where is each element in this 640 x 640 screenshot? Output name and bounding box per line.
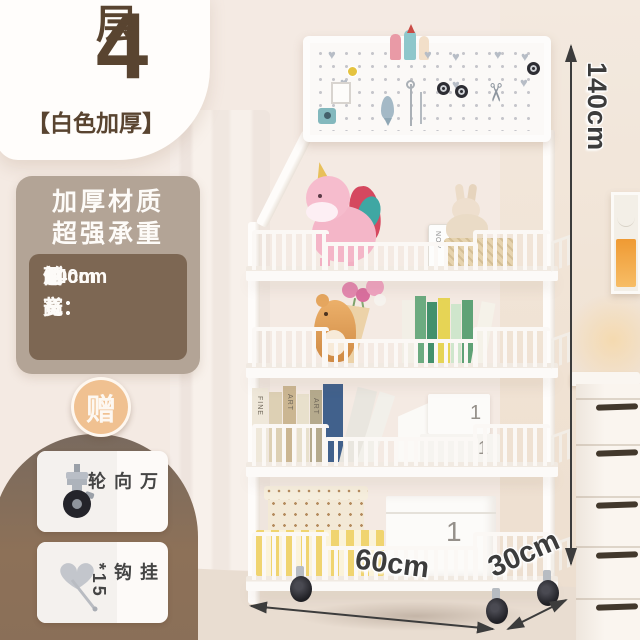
product-title-card: 4层 【白色加厚】 bbox=[0, 0, 210, 160]
feature-title-line2: 超强承重 bbox=[16, 218, 200, 250]
spec-value: 140cm bbox=[45, 262, 107, 293]
gift-item-hooks: 挂钩*15 bbox=[37, 542, 168, 623]
tier-unit: 层 bbox=[96, 0, 136, 50]
product-image: ♥ ♥ ♥ ♥ ♥ ♥ ♥ ♥ ✂ NOV 05 bbox=[0, 0, 640, 640]
gift-item-caster: 万向轮 bbox=[37, 451, 168, 532]
feature-title-line1: 加厚材质 bbox=[16, 186, 200, 218]
height-dimension-label: 140cm bbox=[581, 62, 612, 151]
feature-box: 加厚材质 超强承重 面长： 60cm 侧宽： 30cm 总高： 140cm bbox=[16, 176, 200, 374]
feature-title: 加厚材质 超强承重 bbox=[16, 186, 200, 250]
spec-panel: 面长： 60cm 侧宽： 30cm 总高： 140cm bbox=[29, 254, 187, 360]
variant-label: 【白色加厚】 bbox=[0, 104, 196, 138]
depth-arrow bbox=[508, 600, 566, 629]
gift-item-label: 挂钩*15 bbox=[88, 562, 161, 603]
gift-item-label: 万向轮 bbox=[83, 471, 161, 512]
width-arrow bbox=[251, 606, 493, 629]
gift-badge-text: 赠 bbox=[86, 385, 116, 429]
gift-badge: 赠 bbox=[71, 377, 131, 437]
